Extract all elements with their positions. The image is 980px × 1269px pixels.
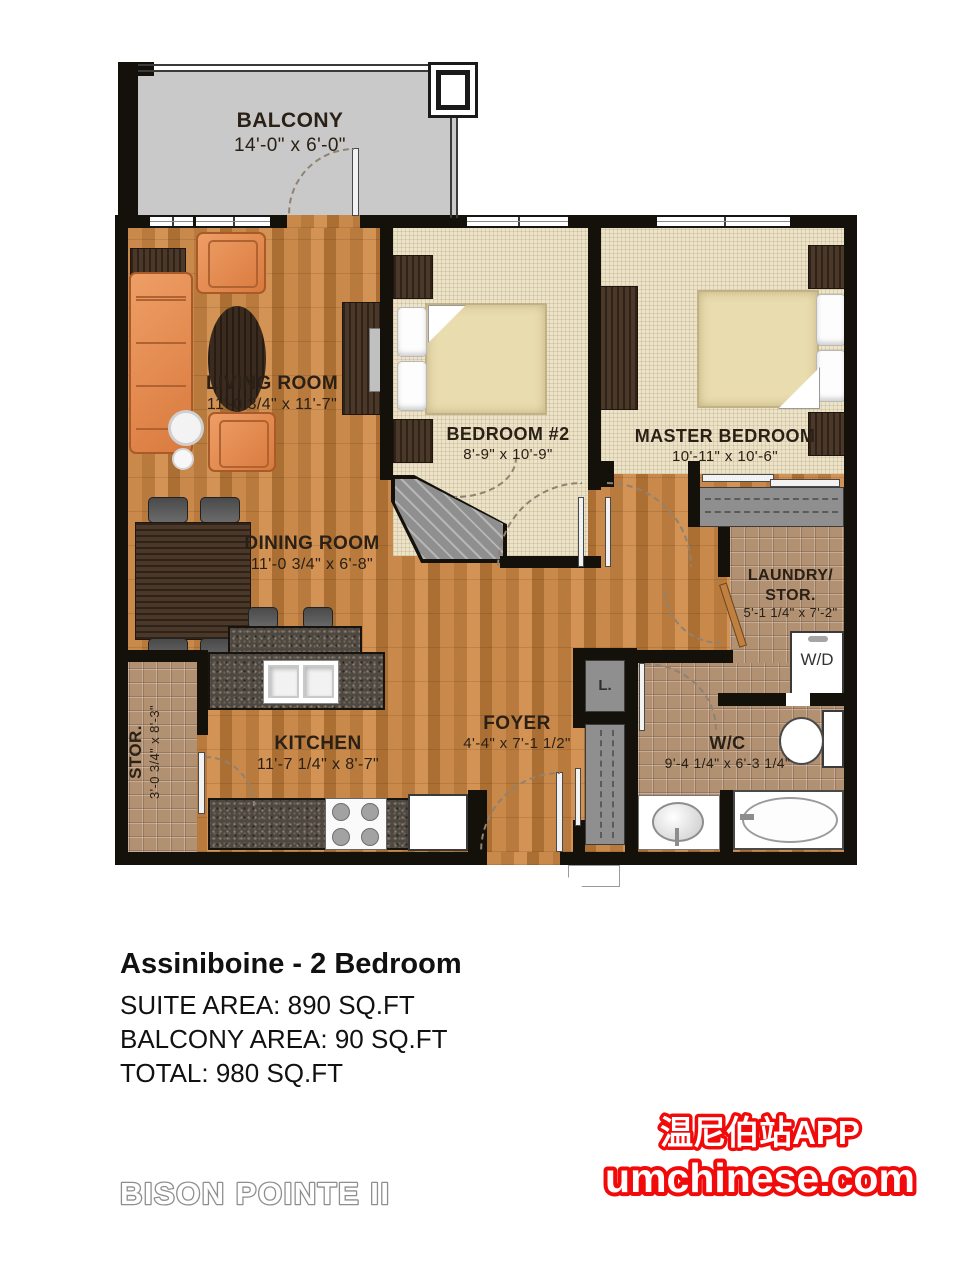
- floorplan-page: { "plan": { "balcony": {"name": "BALCONY…: [0, 0, 980, 1269]
- wc-name: W/C: [645, 733, 810, 755]
- master-nightstand-top: [808, 245, 846, 289]
- foyer-name: FOYER: [427, 712, 607, 735]
- laundry-name2: STOR.: [733, 586, 848, 606]
- wc-label: W/C 9'-4 1/4" x 6'-3 1/4": [645, 733, 810, 772]
- total-area: TOTAL: 980 SQ.FT: [120, 1056, 620, 1090]
- master-dresser: [598, 286, 638, 410]
- laundry-label: LAUNDRY/ STOR. 5'-1 1/4" x 7'-2": [733, 566, 848, 621]
- linen-closet-label: L.: [585, 660, 625, 712]
- plan-title: Assiniboine - 2 Bedroom: [120, 948, 620, 981]
- plan-summary: Assiniboine - 2 Bedroom SUITE AREA: 890 …: [120, 948, 620, 1090]
- master-bedroom-dims: 10'-11" x 10'-6": [610, 448, 840, 466]
- storage-dims: 3'-0 3/4" x 8'-3": [147, 672, 163, 832]
- wall: [197, 650, 208, 735]
- watermark-line2: umchinese.com: [605, 1155, 915, 1201]
- window: [467, 215, 568, 228]
- bedroom2-nightstand-top: [393, 255, 433, 299]
- washer-dryer-label: W/D: [790, 650, 844, 670]
- master-bedroom-name: MASTER BEDROOM: [610, 426, 840, 448]
- floor-plan: W/D: [0, 0, 980, 980]
- vanity-faucet: [675, 828, 679, 846]
- kitchen-label: KITCHEN 11'-7 1/4" x 8'-7": [218, 732, 418, 775]
- balcony-dims: 14'-0" x 6'-0": [180, 134, 400, 157]
- suite-area: SUITE AREA: 890 SQ.FT: [120, 988, 620, 1022]
- fridge: [408, 794, 468, 851]
- balcony-column-inner: [436, 70, 470, 110]
- balcony-label: BALCONY 14'-0" x 6'-0": [180, 108, 400, 157]
- footer-brand: BISON POINTE II: [110, 1168, 470, 1220]
- storage-label: STOR. 3'-0 3/4" x 8'-3": [126, 672, 198, 832]
- storage-door: [198, 752, 205, 814]
- wall: [115, 852, 857, 865]
- window: [196, 215, 270, 228]
- wall: [625, 650, 638, 852]
- kitchen-dims: 11'-7 1/4" x 8'-7": [218, 755, 418, 775]
- wall: [718, 527, 730, 577]
- balcony-railing-top: [138, 64, 456, 72]
- wall: [720, 790, 733, 852]
- foyer-dims: 4'-4" x 7'-1 1/2": [427, 735, 607, 753]
- bathtub-faucet: [740, 814, 754, 820]
- living-room-dims: 11'-0 3/4" x 11'-7": [172, 395, 372, 415]
- stove-burner: [361, 828, 379, 846]
- coat-closet-shelf: [612, 730, 614, 838]
- dining-room-dims: 11'-0 3/4" x 6'-8": [212, 555, 412, 575]
- master-closet-rod: [705, 498, 838, 500]
- window: [150, 215, 193, 228]
- master-closet-slider: [702, 474, 774, 482]
- floor-lamp: [168, 410, 204, 446]
- master-closet-slider: [770, 479, 840, 487]
- floor-lamp-small: [172, 448, 194, 470]
- master-closet-shelf: [705, 511, 838, 513]
- entry-door-opening: [487, 852, 560, 865]
- stove-burner: [332, 828, 350, 846]
- footer-brand-text: BISON POINTE II: [120, 1176, 391, 1211]
- dining-chair: [200, 497, 240, 523]
- sink-basin-left: [268, 665, 299, 698]
- bedroom2-label: BEDROOM #2 8'-9" x 10'-9": [418, 424, 598, 464]
- window: [657, 215, 790, 228]
- toilet-tank: [822, 710, 844, 768]
- storage-name: STOR.: [126, 672, 147, 832]
- coat-closet-door: [575, 768, 581, 826]
- balcony-door-opening: [287, 215, 360, 228]
- bedroom2-dims: 8'-9" x 10'-9": [418, 446, 598, 464]
- washer-dryer-control: [808, 636, 828, 642]
- laundry-wall-gap: [786, 693, 810, 706]
- dining-chair: [148, 497, 188, 523]
- wall: [380, 228, 393, 480]
- watermark-line1: 温尼伯站APP: [660, 1114, 860, 1151]
- wc-dims: 9'-4 1/4" x 6'-3 1/4": [645, 755, 810, 772]
- watermark: 温尼伯站APP umchinese.com: [555, 1100, 965, 1210]
- wall: [128, 650, 208, 662]
- stove-burner: [361, 803, 379, 821]
- wall: [688, 461, 700, 527]
- laundry-name: LAUNDRY/: [733, 566, 848, 586]
- bedroom2-pillow: [397, 307, 427, 357]
- wall: [573, 820, 585, 865]
- master-closet: [697, 487, 844, 527]
- wall: [628, 650, 733, 663]
- sink-basin-right: [303, 665, 334, 698]
- wall: [573, 648, 637, 660]
- foyer-label: FOYER 4'-4" x 7'-1 1/2": [427, 712, 607, 753]
- living-room-label: LIVING ROOM 11'-0 3/4" x 11'-7": [172, 372, 372, 415]
- balcony-railing-right: [450, 118, 458, 218]
- master-pillow: [816, 350, 846, 402]
- laundry-dims: 5'-1 1/4" x 7'-2": [733, 605, 848, 621]
- bedroom2-name: BEDROOM #2: [418, 424, 598, 446]
- bathtub-basin: [742, 797, 838, 843]
- entry-landing: [568, 865, 620, 887]
- armchair-bottom-cushion: [219, 420, 269, 468]
- wall: [844, 215, 857, 865]
- wall: [718, 693, 844, 706]
- balcony-area: BALCONY AREA: 90 SQ.FT: [120, 1022, 620, 1056]
- living-room-name: LIVING ROOM: [172, 372, 372, 395]
- balcony-name: BALCONY: [180, 108, 400, 134]
- dining-room-name: DINING ROOM: [212, 532, 412, 555]
- stove-burner: [332, 803, 350, 821]
- master-pillow: [816, 294, 846, 346]
- master-bedroom-label: MASTER BEDROOM 10'-11" x 10'-6": [610, 426, 840, 466]
- bedroom2-pillow: [397, 361, 427, 411]
- armchair-top-cushion: [208, 240, 258, 288]
- wall: [118, 62, 138, 218]
- dining-room-label: DINING ROOM 11'-0 3/4" x 6'-8": [212, 532, 412, 575]
- kitchen-name: KITCHEN: [218, 732, 418, 755]
